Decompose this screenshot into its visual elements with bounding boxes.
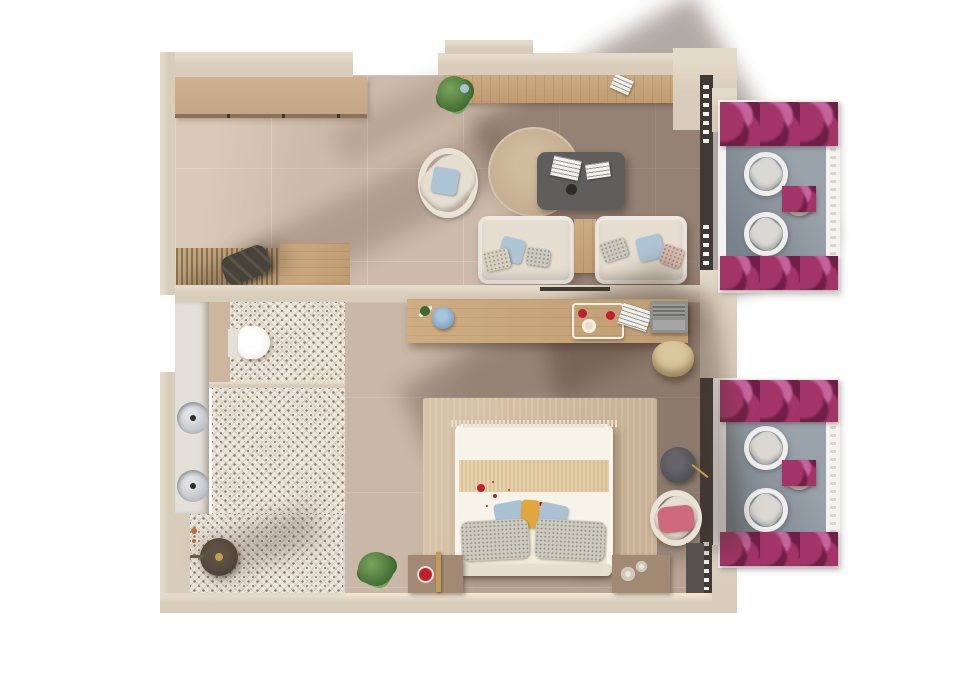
headboard — [457, 564, 611, 576]
sofa-left — [478, 216, 574, 284]
sofa-pillow-patterned — [599, 236, 630, 263]
flowering-plants-top — [720, 102, 838, 146]
pink-pillow — [657, 504, 696, 534]
side-table — [574, 219, 596, 273]
laptop — [650, 301, 688, 333]
left-wall-lower — [160, 372, 175, 613]
top-wall-left — [163, 52, 353, 77]
laptop-screen — [653, 304, 685, 317]
flowering-plants-bottom — [720, 256, 838, 290]
sink-lower-drain — [190, 483, 196, 489]
balcony-upper — [718, 100, 840, 293]
shower-head-center — [215, 553, 223, 561]
table-lamp-gold — [436, 552, 441, 592]
bed-fringe — [451, 420, 617, 427]
toilet — [238, 326, 270, 359]
coffee-table-vase — [566, 184, 577, 195]
lounge-chair — [650, 490, 702, 546]
sofa-pillow-gray — [525, 246, 551, 267]
desk-flower-sprig — [420, 306, 430, 316]
armchair-pillow — [430, 166, 460, 196]
candle — [636, 561, 647, 572]
toilet-wall-ledge — [206, 302, 230, 386]
blue-tin — [432, 307, 454, 329]
candle — [621, 567, 635, 581]
table-flowers — [782, 460, 816, 486]
shower-left-wall — [175, 514, 190, 593]
bed-pillow-left — [460, 518, 530, 562]
rose-petals — [477, 484, 485, 492]
left-wall-upper — [160, 52, 175, 295]
sofa-pillow-patterned — [482, 248, 512, 273]
tray-plate — [582, 319, 596, 333]
armchair — [418, 148, 478, 218]
glass-partition — [343, 514, 345, 593]
shower-arm — [190, 555, 204, 558]
bath-amenities — [191, 528, 197, 534]
top-wall-right — [438, 53, 673, 75]
wardrobe — [686, 543, 704, 593]
sink-upper-drain — [190, 415, 196, 421]
outdoor-chair — [741, 485, 791, 535]
bottom-wall — [160, 593, 735, 613]
bathroom-window-gap — [155, 295, 175, 372]
kitchen-counter-edge — [175, 114, 367, 118]
bed-duvet-top — [459, 428, 609, 460]
laptop-keyboard — [653, 320, 685, 330]
balcony-railing-glimpse — [703, 85, 709, 147]
floor-plan — [0, 0, 955, 675]
double-bed — [455, 424, 613, 576]
console-plant-left — [437, 76, 471, 112]
red-flower-bowl — [417, 566, 434, 583]
outdoor-chair — [742, 210, 790, 258]
table-flowers — [782, 186, 816, 212]
desk-chair — [652, 341, 694, 377]
bed-pillow-right — [534, 518, 606, 562]
corner-plant — [358, 552, 394, 586]
top-wall-step — [445, 40, 533, 54]
flowering-plants-top — [720, 380, 838, 422]
console-vase — [460, 84, 469, 93]
breakfast-tray — [572, 303, 624, 339]
kitchen-counter — [175, 77, 367, 117]
bathroom-tile-floor — [212, 388, 345, 514]
tray-flowers — [578, 309, 587, 318]
